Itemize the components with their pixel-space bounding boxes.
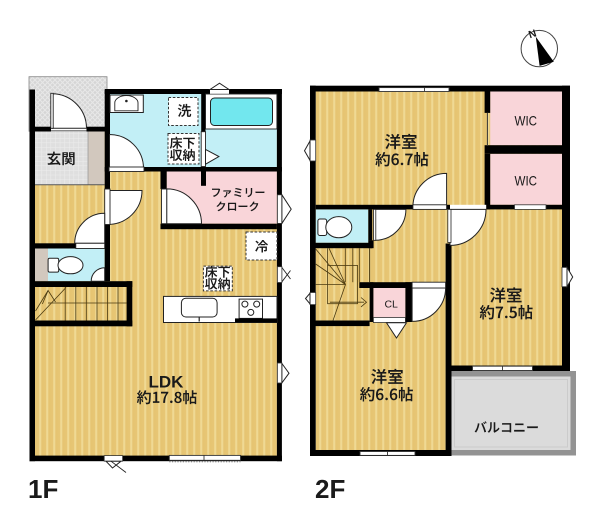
svg-text:WIC: WIC bbox=[515, 173, 538, 189]
svg-text:CL: CL bbox=[384, 298, 398, 310]
svg-text:1F: 1F bbox=[28, 474, 58, 504]
svg-text:2F: 2F bbox=[315, 474, 345, 504]
svg-text:WIC: WIC bbox=[515, 113, 538, 129]
svg-text:LDK: LDK bbox=[149, 373, 185, 392]
